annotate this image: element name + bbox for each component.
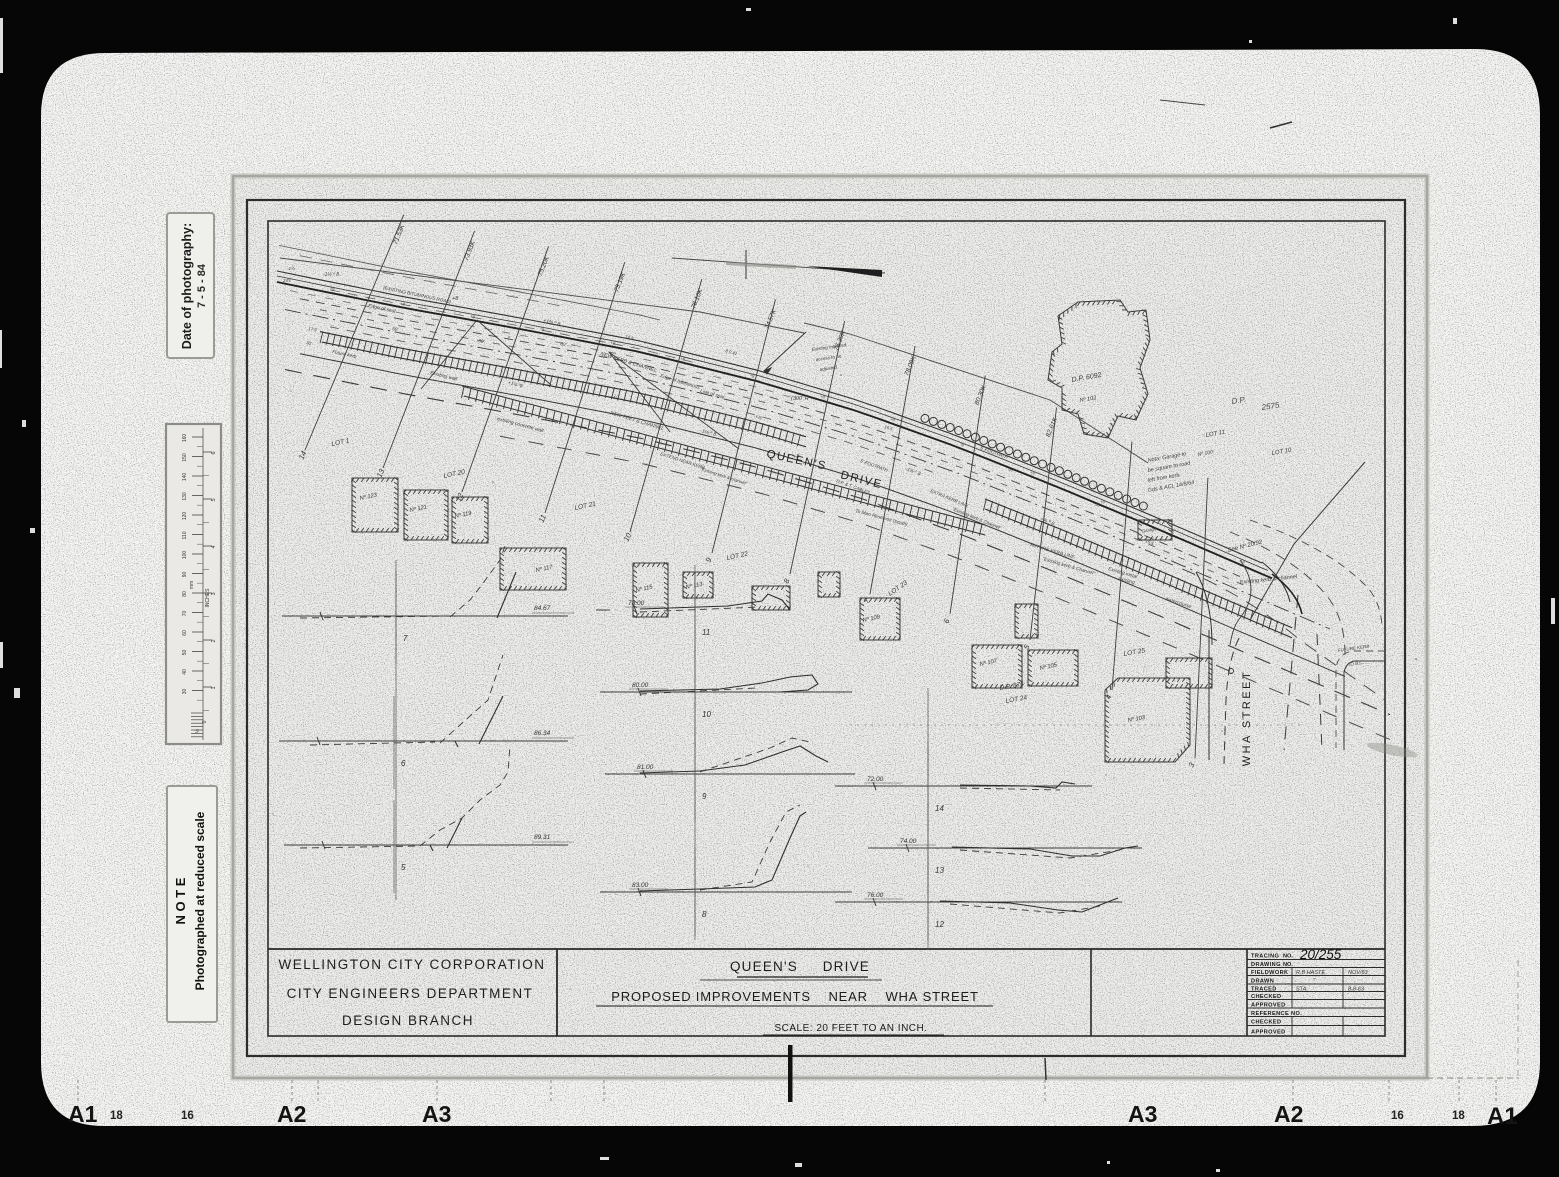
svg-text:20/255: 20/255	[1299, 947, 1342, 962]
svg-text:18: 18	[110, 1110, 123, 1122]
svg-text:14: 14	[935, 804, 944, 813]
svg-text:86.34: 86.34	[534, 730, 551, 737]
svg-text:1: 1	[211, 686, 217, 689]
svg-text:120: 120	[182, 512, 188, 521]
svg-text:QUEEN'S DRIVE: QUEEN'S DRIVE	[730, 959, 870, 974]
svg-text:16: 16	[1391, 1110, 1404, 1122]
svg-text:-1½: -1½	[287, 265, 295, 271]
svg-text:24'c: 24'c	[282, 278, 292, 283]
svg-text:+8: +8	[452, 296, 459, 302]
svg-text:83.00: 83.00	[632, 882, 649, 889]
svg-text:80: 80	[182, 591, 188, 597]
svg-text:WHA STREET: WHA STREET	[1241, 670, 1253, 767]
svg-text:60: 60	[182, 630, 188, 636]
svg-text:CITY ENGINEERS DEPARTMENT: CITY ENGINEERS DEPARTMENT	[287, 986, 534, 1001]
svg-text:4: 4	[211, 545, 217, 548]
svg-text:Photographed at reduced scale: Photographed at reduced scale	[193, 811, 207, 990]
svg-text:74.00: 74.00	[900, 838, 917, 845]
svg-text:0: 0	[202, 720, 208, 723]
svg-text:A3: A3	[422, 1101, 451, 1127]
svg-text:TRACING: TRACING	[1251, 954, 1279, 960]
svg-text:50': 50'	[392, 326, 399, 332]
svg-text:APPROVED: APPROVED	[1251, 1030, 1286, 1036]
svg-text:INCHES: INCHES	[205, 588, 211, 608]
svg-text:90: 90	[182, 572, 188, 578]
svg-text:N O T E: N O T E	[173, 877, 188, 924]
svg-text:130: 130	[182, 492, 188, 501]
svg-text:CHECKED: CHECKED	[1251, 994, 1281, 1000]
svg-text:TRACED: TRACED	[1251, 987, 1277, 993]
svg-text:40: 40	[182, 669, 188, 675]
svg-text:Date of photography:: Date of photography:	[180, 223, 194, 349]
svg-text:12: 12	[935, 920, 944, 929]
svg-text:mm: mm	[189, 581, 195, 589]
svg-text:140: 140	[182, 473, 188, 482]
svg-text:8-8-63: 8-8-63	[1348, 987, 1365, 993]
svg-text:DRAWN: DRAWN	[1251, 979, 1274, 985]
svg-text:NO.: NO.	[1283, 962, 1293, 968]
svg-text:13: 13	[935, 866, 944, 875]
svg-text:16: 16	[181, 1110, 194, 1122]
svg-text:APPROVED: APPROVED	[1251, 1003, 1286, 1009]
svg-text:7 - 5 - 84: 7 - 5 - 84	[196, 263, 208, 308]
svg-text:A1: A1	[1487, 1103, 1518, 1130]
svg-text:(300' R: (300' R	[791, 396, 809, 402]
svg-text:30': 30'	[306, 340, 313, 346]
svg-text:SCALE: 20 FEET TO AN INCH.: SCALE: 20 FEET TO AN INCH.	[774, 1023, 927, 1034]
svg-text:PROPOSED IMPROVEMENTS NEAR: PROPOSED IMPROVEMENTS NEAR WHA STREET	[611, 989, 978, 1004]
svg-text:8: 8	[702, 910, 707, 919]
svg-text:NO.: NO.	[1283, 954, 1293, 960]
svg-text:WELLINGTON CITY CORPORATION: WELLINGTON CITY CORPORATION	[278, 957, 545, 972]
svg-text:DRAWING: DRAWING	[1251, 962, 1281, 968]
svg-text:7: 7	[403, 634, 408, 643]
svg-text:2: 2	[211, 639, 217, 642]
svg-text:STA.: STA.	[1296, 987, 1308, 993]
svg-text:100: 100	[182, 551, 188, 560]
svg-text:6: 6	[211, 451, 217, 454]
svg-text:70: 70	[182, 611, 188, 617]
svg-text:-1½ º 8: -1½ º 8	[323, 271, 339, 278]
svg-text:78.00: 78.00	[628, 600, 645, 607]
svg-text:110: 110	[182, 531, 188, 539]
svg-text:A1: A1	[68, 1101, 98, 1127]
svg-text:R.B HASTE: R.B HASTE	[1296, 970, 1325, 976]
svg-text:6: 6	[401, 759, 406, 768]
svg-text:72.00: 72.00	[867, 776, 884, 783]
svg-text:84.67: 84.67	[534, 605, 551, 612]
svg-text:9: 9	[702, 792, 707, 801]
svg-text:5: 5	[401, 863, 406, 872]
svg-text:FIELDWORK: FIELDWORK	[1251, 970, 1288, 976]
svg-text:DESIGN BRANCH: DESIGN BRANCH	[342, 1013, 474, 1028]
svg-text:5: 5	[211, 498, 217, 501]
svg-text:3: 3	[211, 592, 217, 595]
svg-text:81.00: 81.00	[637, 764, 654, 771]
svg-text:18: 18	[1452, 1110, 1465, 1122]
svg-text:89.31: 89.31	[534, 834, 551, 841]
svg-text:80.00: 80.00	[632, 682, 649, 689]
svg-text:160: 160	[182, 434, 188, 443]
svg-text:CHECKED: CHECKED	[1251, 1020, 1281, 1026]
svg-text:76.00: 76.00	[867, 892, 884, 899]
svg-text:150: 150	[182, 453, 188, 462]
svg-text:NOV/63: NOV/63	[1348, 970, 1369, 976]
svg-text:10: 10	[702, 710, 711, 719]
svg-text:A3: A3	[1128, 1101, 1157, 1127]
svg-text:A2: A2	[1274, 1101, 1303, 1127]
svg-text:11: 11	[702, 628, 710, 637]
svg-text:30: 30	[182, 689, 188, 695]
svg-text:A2: A2	[277, 1101, 306, 1127]
svg-text:REFERENCE NO.: REFERENCE NO.	[1251, 1011, 1302, 1017]
svg-text:+8: +8	[793, 454, 800, 460]
svg-text:50: 50	[182, 650, 188, 656]
